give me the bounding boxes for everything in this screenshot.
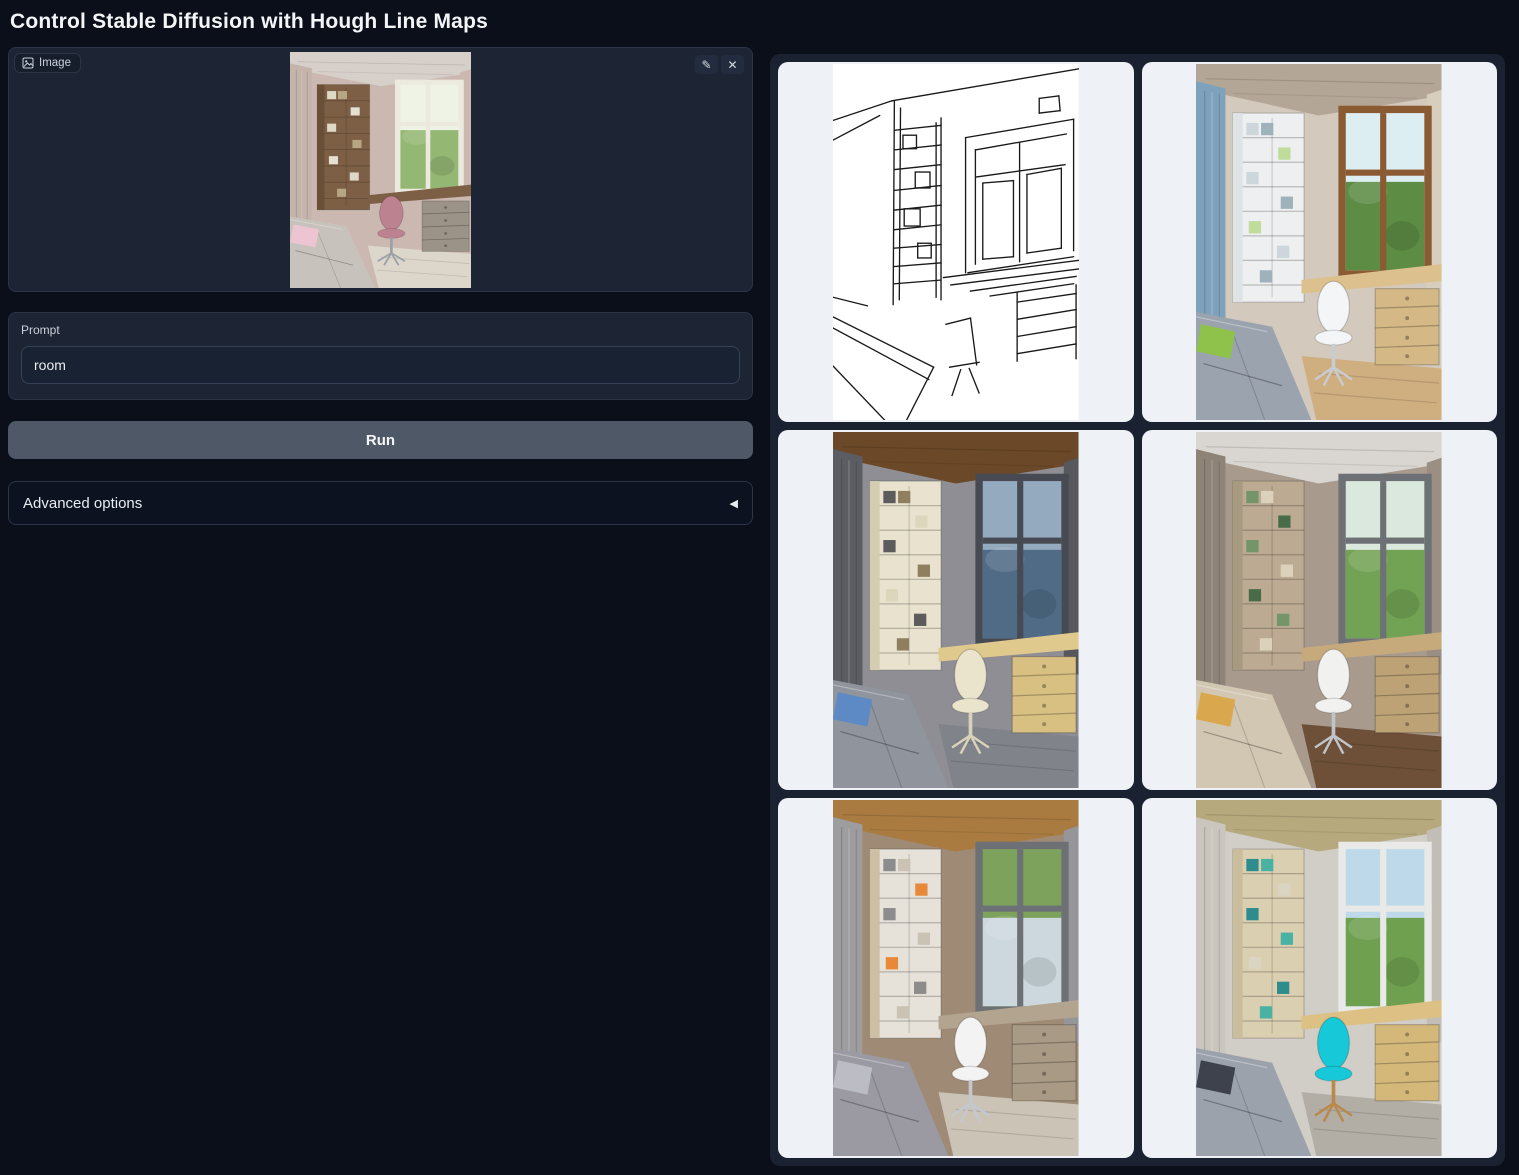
- image-input-label: Image: [14, 53, 81, 73]
- gallery-item[interactable]: [778, 798, 1134, 1158]
- image-actions: ✎ ✕: [695, 55, 744, 74]
- gallery-image: [833, 64, 1079, 420]
- run-button-label: Run: [366, 432, 395, 449]
- gallery-image: [833, 800, 1079, 1156]
- gallery-item[interactable]: [778, 62, 1134, 422]
- output-column: [770, 47, 1505, 1166]
- gallery-item[interactable]: [1142, 62, 1498, 422]
- gallery-item[interactable]: [1142, 798, 1498, 1158]
- gallery-image: [1196, 64, 1442, 420]
- input-image-thumbnail[interactable]: [290, 52, 471, 288]
- advanced-options-label: Advanced options: [23, 495, 142, 512]
- gallery-item[interactable]: [778, 430, 1134, 790]
- chevron-left-icon: ◀: [730, 497, 738, 510]
- image-input-panel[interactable]: Image ✎ ✕: [8, 47, 753, 292]
- prompt-label: Prompt: [21, 323, 740, 337]
- image-input-label-text: Image: [39, 57, 71, 69]
- clear-image-button[interactable]: ✕: [721, 55, 744, 74]
- prompt-input[interactable]: [21, 346, 740, 384]
- main-columns: Image ✎ ✕ Prompt Run: [0, 47, 1519, 1166]
- run-button[interactable]: Run: [8, 421, 753, 459]
- prompt-panel: Prompt: [8, 312, 753, 400]
- advanced-options-accordion[interactable]: Advanced options ◀: [8, 481, 753, 525]
- page-title: Control Stable Diffusion with Hough Line…: [10, 10, 1505, 34]
- edit-image-button[interactable]: ✎: [695, 55, 718, 74]
- gallery-image: [833, 432, 1079, 788]
- close-icon: ✕: [727, 59, 737, 71]
- image-icon: [22, 57, 34, 69]
- gallery-image: [1196, 800, 1442, 1156]
- header: Control Stable Diffusion with Hough Line…: [0, 0, 1519, 34]
- input-column: Image ✎ ✕ Prompt Run: [8, 47, 753, 525]
- pencil-icon: ✎: [701, 59, 711, 71]
- gallery-image: [1196, 432, 1442, 788]
- gallery-grid: [770, 54, 1505, 1166]
- gallery-item[interactable]: [1142, 430, 1498, 790]
